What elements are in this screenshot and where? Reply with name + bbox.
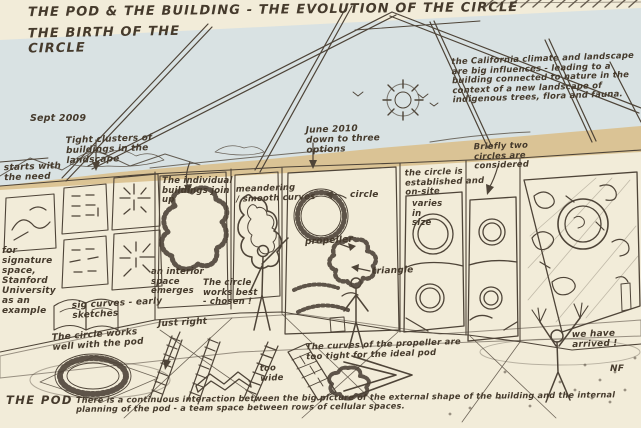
note-tight-clusters: Tight clusters of buildings in the lands… (66, 132, 187, 166)
hand-drawn-sketch-page: THE POD & THE BUILDING - THE EVOLUTION O… (0, 0, 641, 428)
note-circle-works-best: The circle works best - chosen ! (203, 279, 281, 308)
note-varies-in-size: varies in size (412, 200, 462, 229)
panel-two-circles-b (468, 197, 518, 341)
label-triangle: triangle (372, 265, 414, 277)
title-line2: THE BIRTH OF THE CIRCLE (28, 25, 198, 57)
note-meandering: meandering / smooth curves (236, 182, 337, 205)
figure-right (532, 303, 588, 402)
note-signature-space: for signature space, Stanford University… (2, 246, 68, 317)
label-too-wide: too wide (260, 363, 301, 384)
note-starts-with-need: starts with the need (4, 161, 77, 184)
date-sept-2009: Sept 2009 (30, 114, 86, 125)
wave-sketch (196, 372, 251, 392)
signature-initials: NF (610, 364, 624, 374)
figure-center (344, 278, 368, 348)
pod-ring-plan (55, 354, 131, 398)
label-circle: circle (350, 190, 379, 200)
note-we-have-arrived: we have arrived ! (572, 328, 637, 350)
green-site-panel (524, 172, 640, 332)
label-the-pod: THE POD (6, 394, 73, 407)
date-june-2010: June 2010 down to three options (306, 122, 407, 156)
note-california-climate: the California climate and landscape are… (451, 52, 637, 106)
note-briefly-two-circles: Briefly two circles are considered (474, 141, 555, 172)
note-individual-buildings: The individual buildings join up (162, 177, 247, 206)
